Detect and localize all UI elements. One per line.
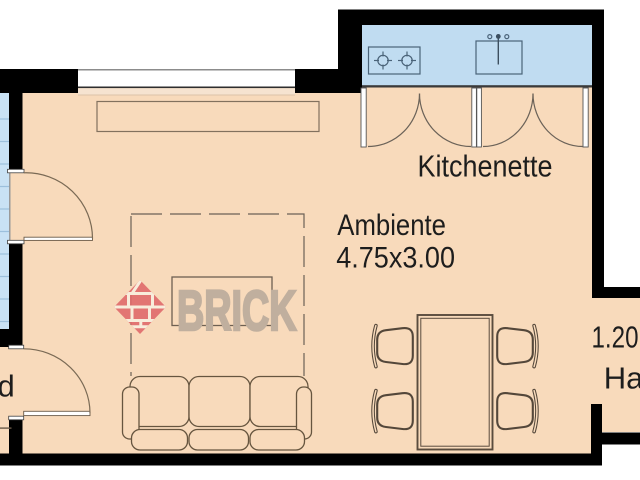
- svg-text:Kitchenette: Kitchenette: [418, 148, 553, 183]
- svg-text:4.75x3.00: 4.75x3.00: [336, 242, 455, 275]
- svg-text:d: d: [0, 368, 15, 403]
- svg-text:BRICK: BRICK: [177, 279, 297, 343]
- svg-text:1.20: 1.20: [592, 320, 639, 355]
- svg-text:Hall: Hall: [604, 361, 640, 396]
- svg-text:Ambiente: Ambiente: [337, 209, 446, 242]
